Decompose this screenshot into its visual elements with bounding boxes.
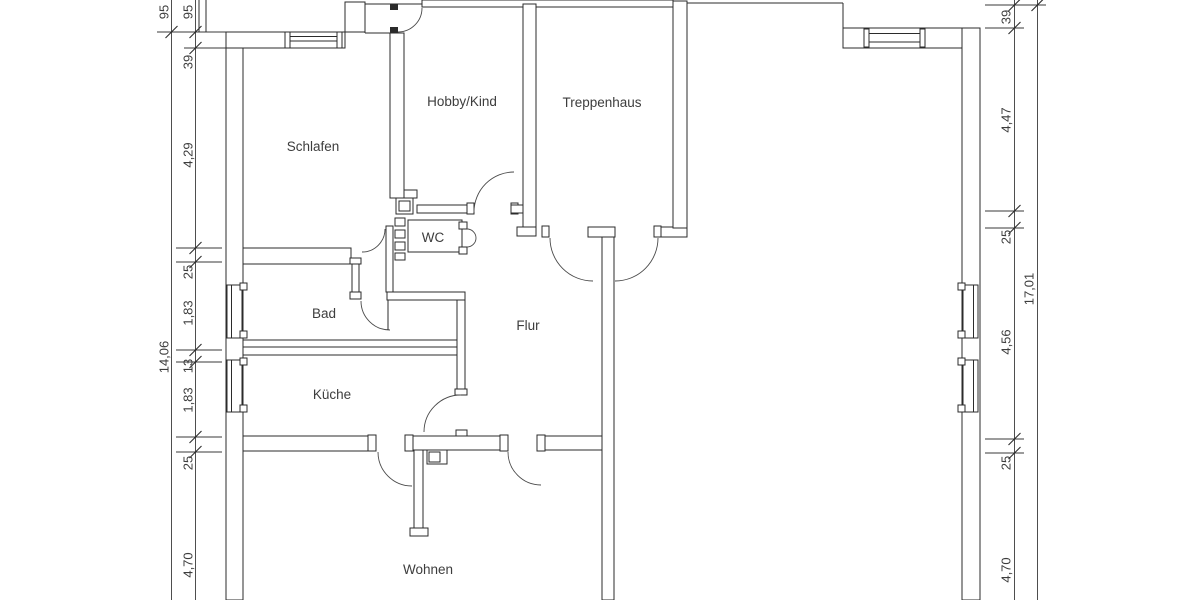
wall-flur-wohnen-east — [545, 436, 602, 450]
dim-label: 25 — [181, 456, 196, 470]
door-stop — [390, 27, 398, 33]
wall-stub-wohnen — [414, 450, 423, 528]
interior-walls — [243, 1, 687, 600]
door-jamb — [455, 389, 467, 395]
dim-label: 1,83 — [181, 387, 196, 412]
room-label-hobby-kind: Hobby/Kind — [427, 94, 497, 109]
window-tab — [240, 331, 247, 338]
door-jamb — [542, 226, 549, 237]
door-arc-wc — [467, 229, 476, 247]
outer-walls — [199, 0, 980, 600]
wall-hobby-south-east — [511, 205, 523, 213]
wall-kueche-east — [457, 300, 465, 392]
window-frame — [337, 32, 342, 48]
window-tab — [958, 358, 965, 365]
window-frame — [285, 32, 290, 48]
room-label-treppenhaus: Treppenhaus — [562, 95, 641, 110]
window-kueche — [227, 358, 247, 412]
room-label-wc: WC — [422, 230, 445, 245]
shaft-cell — [395, 242, 405, 250]
shaft-cell — [395, 253, 405, 260]
door-jamb — [405, 435, 413, 451]
wall-schlafen-hobby — [390, 33, 404, 198]
wall-bad-kueche — [243, 347, 457, 355]
dim-label: 95 — [157, 5, 172, 19]
outer-wall-top-middle — [422, 0, 673, 7]
floor-plan-canvas: 95 14,06 95 39 4,29 25 1,83 13 1,83 25 4… — [0, 0, 1200, 600]
wall-foot — [517, 227, 536, 236]
shaft-cell — [395, 218, 405, 226]
door-jamb — [350, 292, 361, 299]
door-arc-wohnen-right — [508, 452, 541, 485]
dim-label: 25 — [181, 265, 196, 279]
wall-apartment-divider — [602, 237, 614, 600]
door-arc-treppenhaus-right — [615, 238, 658, 281]
door-arc-hobby — [474, 172, 514, 212]
door-jamb — [459, 247, 467, 254]
floor-plan-svg: 95 14,06 95 39 4,29 25 1,83 13 1,83 25 4… — [0, 0, 1200, 600]
door-arc-wohnen-left — [378, 452, 412, 486]
wall-stub-foot — [410, 528, 428, 536]
window-right-2 — [958, 358, 978, 412]
window-tab — [958, 283, 965, 290]
window-frame — [963, 360, 978, 412]
wall-hobby-treppenhaus — [523, 4, 536, 227]
wall-flur-wohnen — [413, 436, 502, 450]
dim-label: 4,56 — [999, 329, 1014, 354]
dim-label: 4,47 — [999, 107, 1014, 132]
shaft-cell — [395, 230, 405, 238]
door-arc-bad — [361, 301, 390, 330]
dim-label: 14,06 — [157, 341, 172, 374]
window-right-1 — [958, 283, 978, 338]
window-tab — [958, 405, 965, 412]
door-jamb — [459, 222, 467, 229]
door-jamb — [368, 435, 376, 451]
wall-treppenhaus-east — [673, 1, 687, 228]
dim-label: 4,29 — [181, 142, 196, 167]
wall-kueche-north — [387, 292, 465, 300]
door-stop — [390, 4, 398, 10]
wall-shaft-west — [386, 226, 393, 292]
window-frame — [920, 29, 925, 47]
door-jamb — [654, 226, 661, 237]
dim-label: 4,70 — [999, 557, 1014, 582]
window-frame — [963, 285, 978, 338]
room-label-bad: Bad — [312, 306, 336, 321]
door-arc-treppenhaus-left — [550, 238, 593, 281]
window-tab — [240, 358, 247, 365]
dim-label: 39 — [181, 55, 196, 69]
wall-kueche-wohnen — [243, 436, 370, 451]
window-bad — [227, 283, 247, 338]
wall-hobby-south — [417, 205, 473, 213]
door-leaf-bad — [352, 262, 359, 294]
dim-label: 4,70 — [181, 552, 196, 577]
dim-label: 95 — [181, 5, 196, 19]
dim-label: 25 — [999, 230, 1014, 244]
door-arc-schlafen — [362, 229, 385, 252]
room-label-schlafen: Schlafen — [287, 139, 340, 154]
door-arc-entrance — [398, 8, 422, 32]
shaft-box-inner — [399, 201, 410, 211]
door-jamb — [500, 435, 508, 451]
chimney-box-inner — [429, 452, 440, 462]
room-label-wohnen: Wohnen — [403, 562, 453, 577]
room-label-flur: Flur — [516, 318, 540, 333]
dim-label: 39 — [999, 10, 1014, 24]
door-jamb — [537, 435, 545, 451]
door-arc-kueche — [424, 395, 461, 432]
door-jamb — [467, 203, 474, 214]
dim-label: 1,83 — [181, 300, 196, 325]
window-frame — [864, 29, 869, 47]
dim-label: 25 — [999, 456, 1014, 470]
dim-label: 17,01 — [1022, 273, 1037, 306]
dim-label: 13 — [181, 359, 196, 373]
wall-schlafen-bad — [243, 248, 351, 264]
wall-jog — [404, 190, 417, 198]
window-frame — [227, 360, 242, 412]
dimension-chain-right: 39 4,47 25 4,56 25 4,70 17,01 — [985, 0, 1046, 600]
door-jamb — [350, 258, 361, 264]
wall-corner — [345, 2, 365, 32]
window-tab — [240, 283, 247, 290]
window-tab — [958, 331, 965, 338]
window-frame — [227, 285, 242, 338]
wall-between-doors — [588, 227, 615, 237]
room-label-kueche: Küche — [313, 387, 351, 402]
window-tab — [240, 405, 247, 412]
